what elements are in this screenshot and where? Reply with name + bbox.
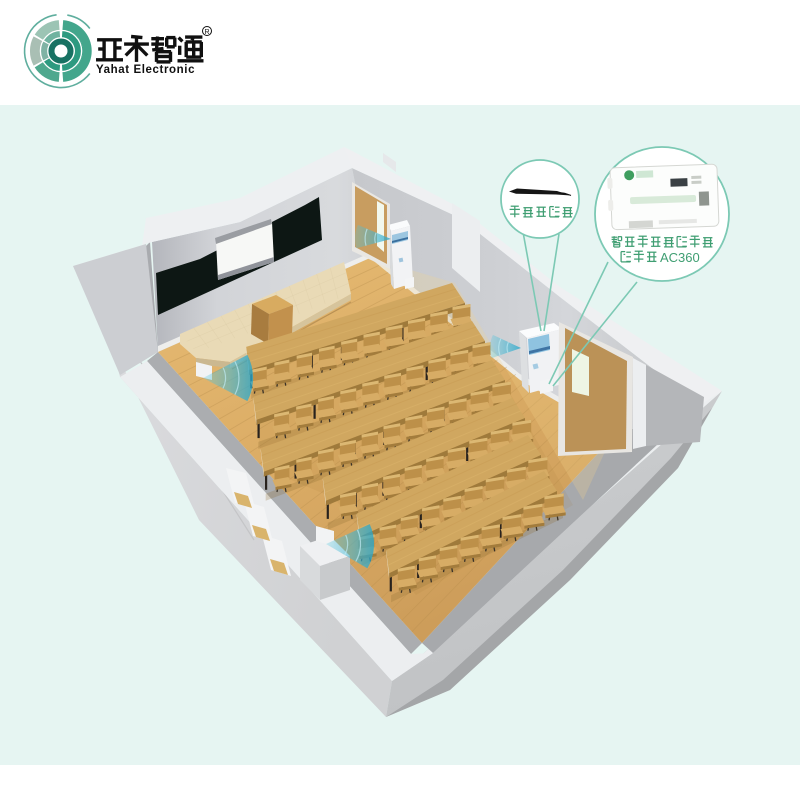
svg-text:AC360: AC360 <box>660 250 700 265</box>
svg-text:R: R <box>205 29 210 36</box>
svg-text:Yahat Electronic: Yahat Electronic <box>96 64 195 76</box>
